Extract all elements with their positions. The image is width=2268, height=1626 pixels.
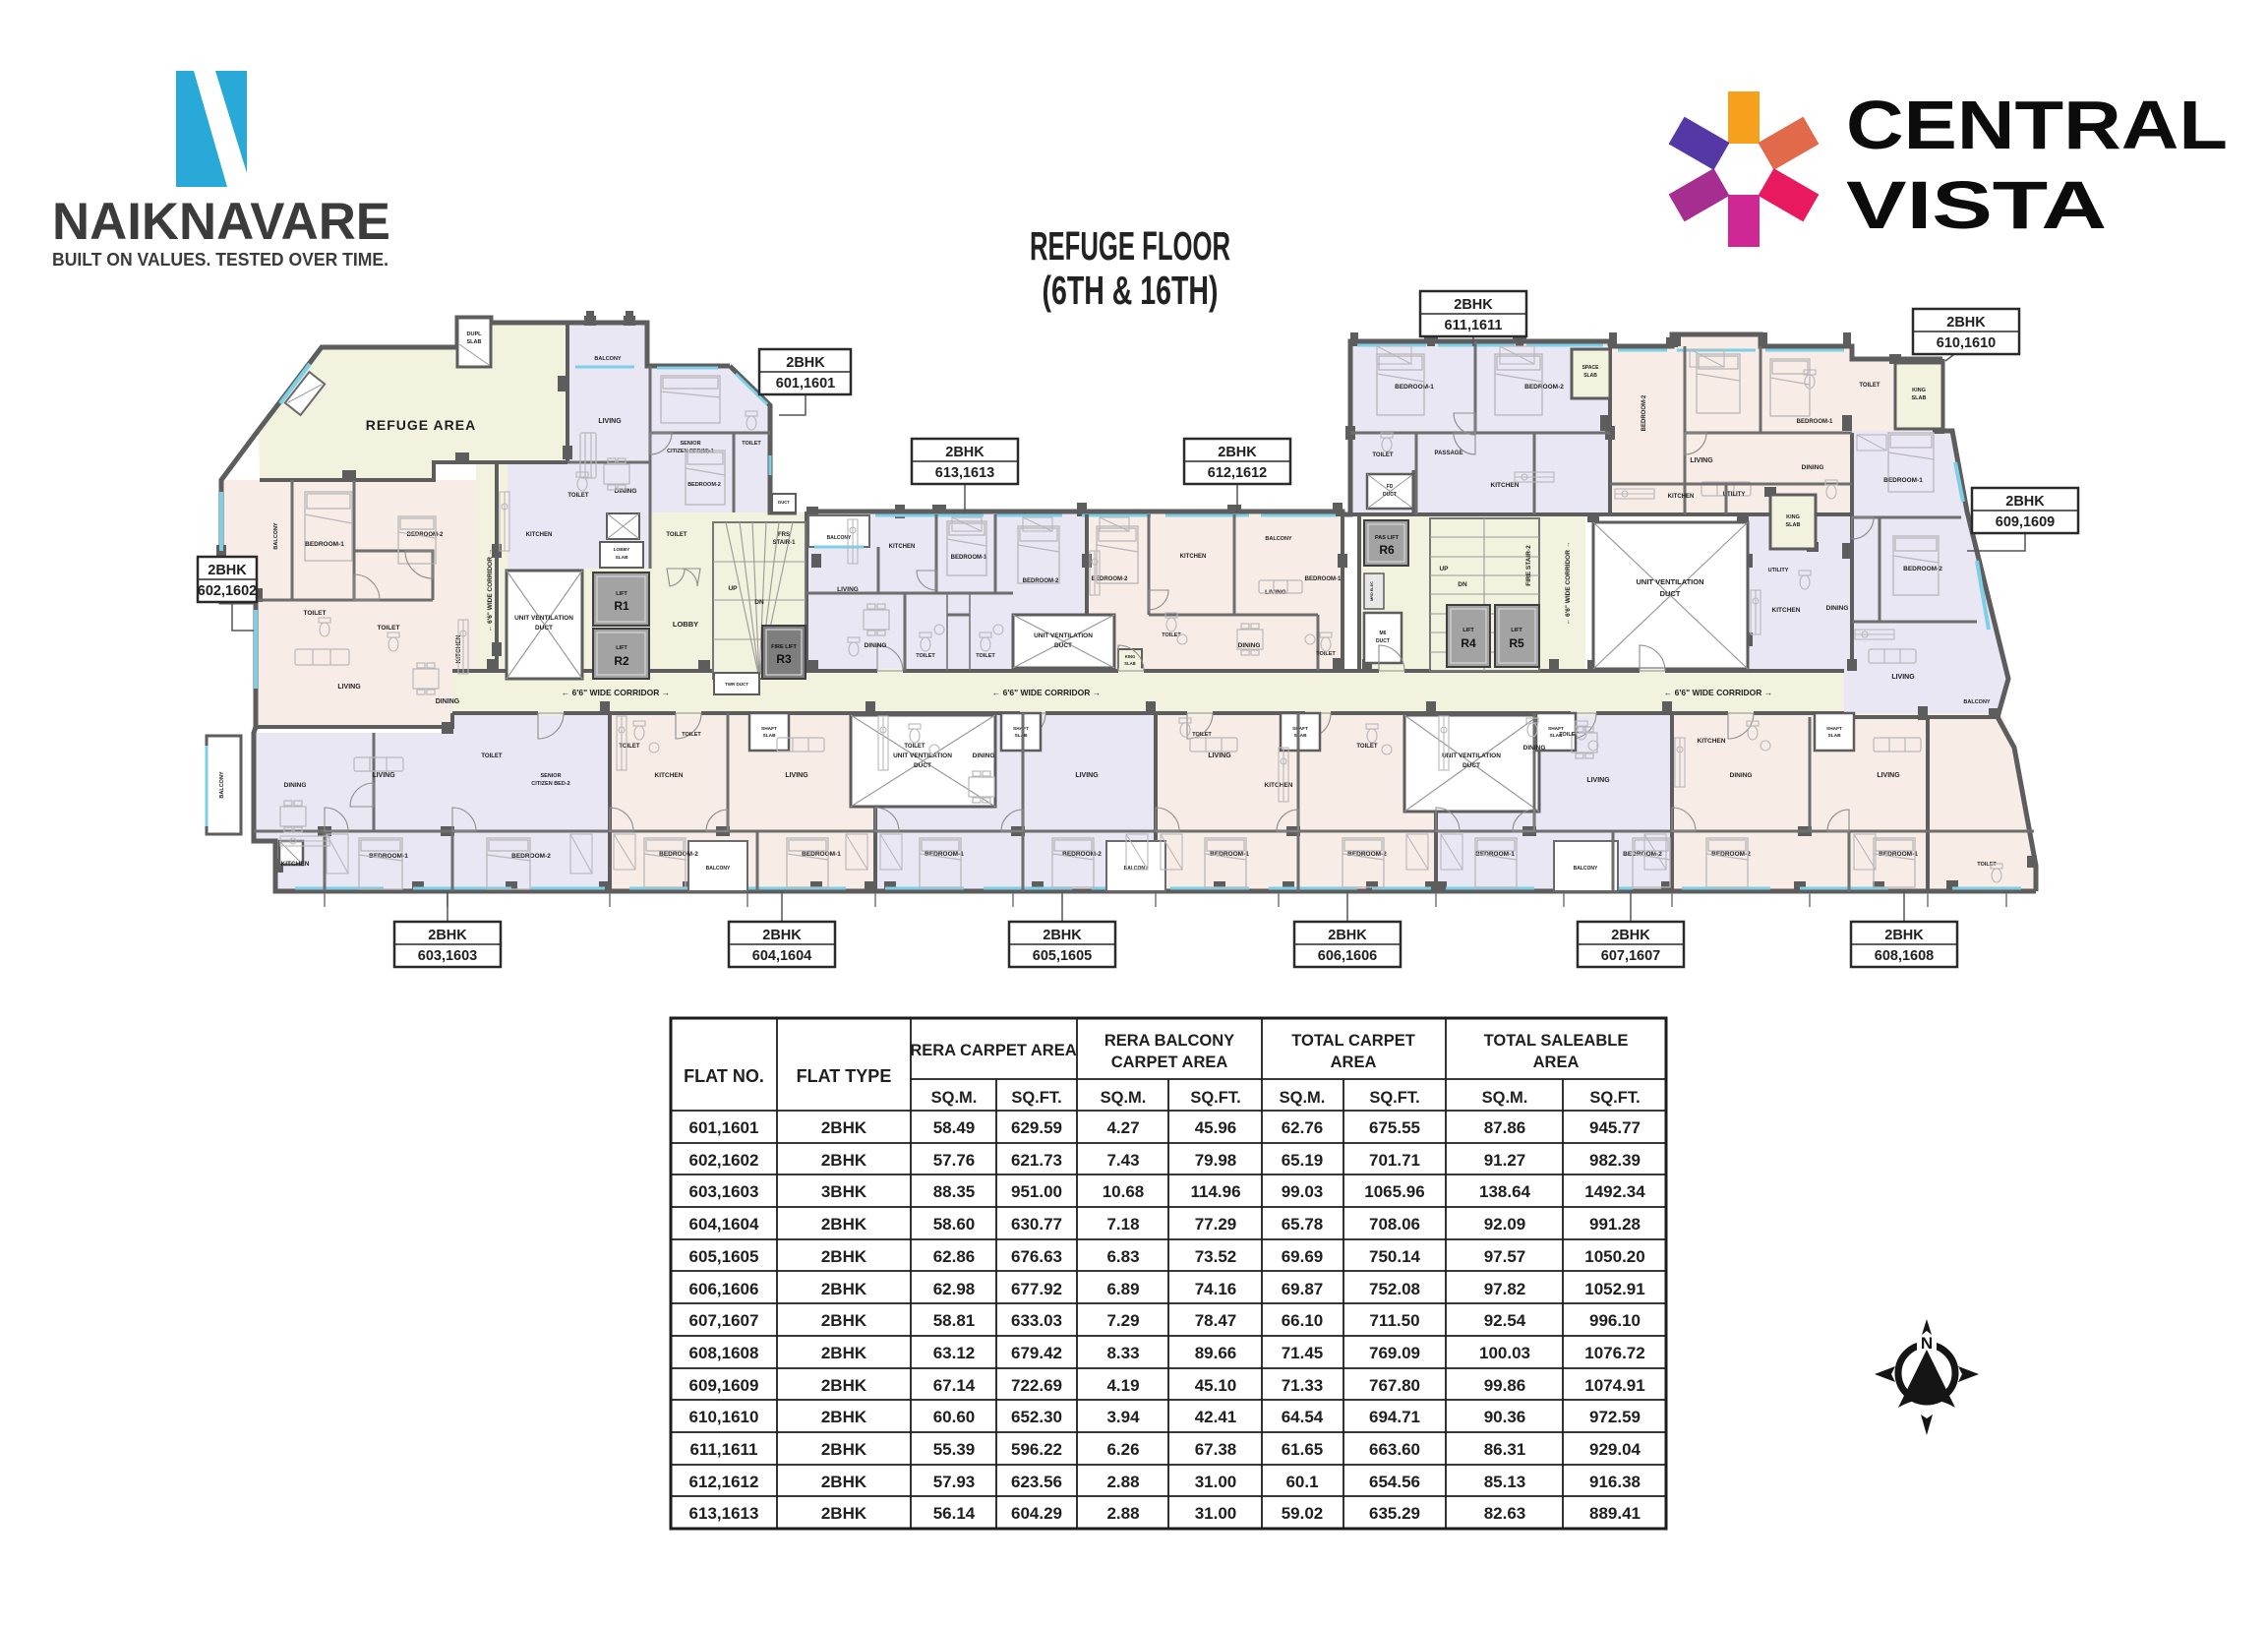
svg-text:601,1601: 601,1601 — [776, 376, 835, 391]
svg-text:CITIZEN BED-2: CITIZEN BED-2 — [531, 781, 569, 787]
svg-text:FLAT TYPE: FLAT TYPE — [797, 1066, 892, 1086]
svg-text:1050.20: 1050.20 — [1584, 1247, 1644, 1266]
svg-text:92.09: 92.09 — [1484, 1215, 1526, 1234]
svg-text:65.19: 65.19 — [1282, 1151, 1324, 1170]
svg-text:FIRE LIFT: FIRE LIFT — [771, 644, 797, 650]
svg-text:62.86: 62.86 — [933, 1247, 976, 1266]
svg-text:DINING: DINING — [1238, 642, 1261, 649]
svg-text:TOILET: TOILET — [567, 493, 589, 499]
svg-text:2BHK: 2BHK — [945, 445, 985, 460]
svg-text:2BHK: 2BHK — [821, 1247, 867, 1266]
svg-text:635.29: 635.29 — [1369, 1504, 1420, 1523]
svg-text:AREA: AREA — [1533, 1054, 1580, 1071]
svg-text:630.77: 630.77 — [1011, 1215, 1062, 1234]
svg-text:916.38: 916.38 — [1589, 1473, 1641, 1491]
svg-text:FD: FD — [1387, 484, 1394, 490]
svg-text:90.36: 90.36 — [1484, 1408, 1526, 1426]
svg-text:1076.72: 1076.72 — [1584, 1344, 1644, 1362]
svg-text:TOILET: TOILET — [976, 653, 995, 659]
svg-text:DUCT: DUCT — [1383, 492, 1397, 498]
svg-text:SHAFT: SHAFT — [1292, 726, 1308, 732]
svg-text:TOILET: TOILET — [378, 625, 400, 632]
svg-text:SQ.M.: SQ.M. — [1482, 1089, 1528, 1107]
svg-text:DUCT: DUCT — [1376, 638, 1390, 644]
svg-text:R6: R6 — [1379, 543, 1395, 557]
svg-text:BUILT ON VALUES. TESTED OVER T: BUILT ON VALUES. TESTED OVER TIME. — [52, 250, 388, 270]
svg-text:← 6'6" WIDE CORRIDOR →: ← 6'6" WIDE CORRIDOR → — [562, 688, 670, 697]
svg-text:TOILET: TOILET — [666, 532, 687, 538]
svg-text:2.88: 2.88 — [1106, 1473, 1139, 1491]
svg-text:889.41: 889.41 — [1589, 1504, 1641, 1523]
svg-text:FRS: FRS — [778, 532, 790, 538]
svg-text:608,1608: 608,1608 — [689, 1344, 759, 1362]
svg-text:623.56: 623.56 — [1011, 1473, 1062, 1491]
svg-text:PASSAGE: PASSAGE — [1435, 451, 1463, 456]
svg-text:TOILET: TOILET — [1192, 732, 1212, 738]
svg-text:LOBBY: LOBBY — [614, 547, 631, 553]
svg-text:SQ.FT.: SQ.FT. — [1190, 1089, 1240, 1107]
svg-text:BALCONY: BALCONY — [1574, 866, 1598, 872]
svg-text:2BHK: 2BHK — [786, 355, 825, 371]
svg-text:CITIZEN BED(M)-1: CITIZEN BED(M)-1 — [667, 449, 714, 454]
svg-text:KING: KING — [1912, 388, 1926, 393]
svg-text:2BHK: 2BHK — [821, 1504, 867, 1523]
svg-text:613,1613: 613,1613 — [935, 465, 994, 481]
svg-text:607,1607: 607,1607 — [1601, 948, 1660, 964]
svg-text:SHAFT: SHAFT — [1013, 726, 1029, 732]
svg-text:TOILET: TOILET — [904, 744, 925, 750]
svg-text:PAS LIFT: PAS LIFT — [1375, 535, 1400, 541]
svg-text:TOTAL CARPET: TOTAL CARPET — [1291, 1032, 1415, 1050]
svg-text:69.87: 69.87 — [1282, 1280, 1324, 1298]
svg-text:DINING: DINING — [865, 642, 887, 649]
svg-text:UNIT VENTILATION: UNIT VENTILATION — [514, 615, 573, 622]
svg-text:31.00: 31.00 — [1195, 1473, 1237, 1491]
svg-text:SENIOR: SENIOR — [680, 441, 700, 447]
svg-text:609,1609: 609,1609 — [689, 1376, 759, 1395]
svg-text:679.42: 679.42 — [1011, 1344, 1062, 1362]
svg-text:BALCONY: BALCONY — [594, 356, 622, 362]
svg-text:604,1604: 604,1604 — [752, 948, 811, 964]
svg-text:FIRE STAIR-2: FIRE STAIR-2 — [1525, 545, 1532, 586]
svg-text:73.52: 73.52 — [1195, 1247, 1237, 1266]
svg-text:UP: UP — [728, 585, 738, 592]
svg-text:TOILET: TOILET — [1559, 732, 1579, 738]
svg-text:8.33: 8.33 — [1106, 1344, 1139, 1362]
svg-text:603,1603: 603,1603 — [689, 1182, 759, 1201]
svg-text:602,1602: 602,1602 — [198, 583, 257, 599]
svg-text:SENIOR: SENIOR — [540, 773, 561, 779]
svg-text:603,1603: 603,1603 — [418, 948, 477, 964]
svg-text:7.18: 7.18 — [1106, 1215, 1139, 1234]
svg-text:929.04: 929.04 — [1589, 1440, 1641, 1459]
svg-text:65.78: 65.78 — [1282, 1215, 1324, 1234]
svg-text:611,1611: 611,1611 — [1445, 318, 1503, 333]
svg-text:KING: KING — [1786, 514, 1800, 520]
svg-text:6.83: 6.83 — [1106, 1247, 1139, 1266]
svg-text:2BHK: 2BHK — [821, 1473, 867, 1491]
svg-text:LIFT: LIFT — [1511, 628, 1522, 633]
svg-text:UNIT VENTILATION: UNIT VENTILATION — [1636, 577, 1703, 586]
svg-text:71.45: 71.45 — [1282, 1344, 1324, 1362]
svg-text:BALCONY: BALCONY — [1963, 699, 1991, 705]
svg-text:TOILET: TOILET — [619, 744, 640, 750]
svg-text:1492.34: 1492.34 — [1584, 1182, 1645, 1201]
svg-text:1065.96: 1065.96 — [1364, 1182, 1424, 1201]
svg-text:LIFT: LIFT — [616, 645, 627, 651]
svg-text:675.55: 675.55 — [1369, 1118, 1420, 1137]
svg-text:4.19: 4.19 — [1106, 1376, 1139, 1395]
svg-text:2BHK: 2BHK — [821, 1311, 867, 1330]
svg-text:610,1610: 610,1610 — [1937, 335, 1996, 351]
svg-text:KING: KING — [1125, 654, 1135, 659]
svg-text:DINING: DINING — [1826, 605, 1849, 612]
svg-text:BEDROOM-1: BEDROOM-1 — [1797, 419, 1833, 425]
svg-text:62.98: 62.98 — [933, 1280, 976, 1298]
svg-text:663.60: 663.60 — [1369, 1440, 1420, 1459]
svg-text:604,1604: 604,1604 — [689, 1215, 759, 1234]
svg-text:LIVING: LIVING — [1208, 753, 1231, 759]
svg-text:DINING: DINING — [284, 782, 307, 789]
svg-text:78.47: 78.47 — [1195, 1311, 1237, 1330]
svg-text:VISTA: VISTA — [1846, 167, 2107, 243]
svg-text:SPACE: SPACE — [1582, 365, 1600, 371]
svg-text:596.22: 596.22 — [1011, 1440, 1062, 1459]
svg-text:722.69: 722.69 — [1011, 1376, 1062, 1395]
svg-text:TOILET: TOILET — [1372, 452, 1394, 458]
svg-text:767.80: 767.80 — [1369, 1376, 1420, 1395]
svg-text:DUCT: DUCT — [778, 500, 790, 505]
svg-text:KITCHEN: KITCHEN — [889, 544, 916, 550]
svg-text:TOILET: TOILET — [1977, 862, 1997, 868]
svg-text:LIVING: LIVING — [1075, 772, 1099, 779]
svg-text:DINING: DINING — [1730, 772, 1753, 779]
svg-text:STAIR-1: STAIR-1 — [773, 540, 797, 546]
svg-text:SQ.M.: SQ.M. — [931, 1089, 978, 1107]
svg-text:DUCT: DUCT — [1054, 642, 1072, 649]
svg-text:99.86: 99.86 — [1484, 1376, 1526, 1395]
svg-text:654.56: 654.56 — [1369, 1473, 1420, 1491]
svg-text:SLAB: SLAB — [1827, 733, 1841, 739]
svg-text:42.41: 42.41 — [1195, 1408, 1237, 1426]
svg-text:LIVING: LIVING — [1586, 777, 1610, 784]
svg-text:TOILET: TOILET — [682, 732, 701, 738]
svg-text:BALCONY: BALCONY — [219, 771, 225, 799]
svg-text:TOILET: TOILET — [916, 653, 935, 659]
svg-text:UNIT VENTILATION: UNIT VENTILATION — [1442, 753, 1501, 759]
svg-text:DINING: DINING — [1523, 745, 1546, 752]
svg-text:← 6'6" WIDE CORRIDOR →: ← 6'6" WIDE CORRIDOR → — [1664, 688, 1772, 697]
svg-text:694.71: 694.71 — [1369, 1408, 1420, 1426]
svg-text:BEDROOM-1: BEDROOM-1 — [951, 555, 987, 561]
svg-text:57.93: 57.93 — [933, 1473, 976, 1491]
svg-text:87.86: 87.86 — [1484, 1118, 1526, 1137]
svg-text:752.08: 752.08 — [1369, 1280, 1420, 1298]
svg-text:750.14: 750.14 — [1369, 1247, 1421, 1266]
svg-text:4.27: 4.27 — [1106, 1118, 1139, 1137]
svg-text:TOILET: TOILET — [304, 610, 327, 617]
svg-text:DUCT: DUCT — [535, 625, 553, 632]
svg-text:CENTRAL: CENTRAL — [1846, 87, 2228, 163]
svg-text:SQ.M.: SQ.M. — [1101, 1089, 1147, 1107]
svg-text:DUPL: DUPL — [467, 331, 483, 337]
svg-text:← 6'6" WIDE CORRIDOR →: ← 6'6" WIDE CORRIDOR → — [487, 549, 494, 632]
svg-text:652.30: 652.30 — [1011, 1408, 1062, 1426]
svg-text:SLAB: SLAB — [1912, 395, 1927, 401]
svg-text:10.68: 10.68 — [1103, 1182, 1145, 1201]
svg-text:58.49: 58.49 — [933, 1118, 976, 1137]
svg-text:BEDROOM-2: BEDROOM-2 — [1903, 566, 1942, 572]
svg-text:2.88: 2.88 — [1106, 1504, 1139, 1523]
svg-text:(6TH & 16TH): (6TH & 16TH) — [1043, 268, 1219, 313]
svg-text:97.82: 97.82 — [1484, 1280, 1526, 1298]
svg-text:79.98: 79.98 — [1195, 1151, 1237, 1170]
svg-text:610,1610: 610,1610 — [689, 1408, 759, 1426]
svg-text:621.73: 621.73 — [1011, 1151, 1062, 1170]
svg-text:LIVING: LIVING — [1891, 674, 1915, 681]
svg-text:LIVING: LIVING — [337, 684, 361, 691]
svg-text:100.03: 100.03 — [1479, 1344, 1530, 1362]
svg-text:DINING: DINING — [1802, 464, 1824, 471]
svg-text:2BHK: 2BHK — [1611, 928, 1650, 943]
svg-text:SLAB: SLAB — [1124, 661, 1135, 666]
svg-text:TOILET: TOILET — [481, 753, 503, 759]
svg-text:DINING: DINING — [973, 753, 995, 759]
svg-text:LIVING: LIVING — [1690, 457, 1713, 464]
svg-text:2BHK: 2BHK — [821, 1215, 867, 1234]
svg-text:60.1: 60.1 — [1285, 1473, 1318, 1491]
svg-text:UNIT VENTILATION: UNIT VENTILATION — [893, 753, 952, 759]
svg-text:605,1605: 605,1605 — [1033, 948, 1092, 964]
svg-text:138.64: 138.64 — [1479, 1182, 1531, 1201]
svg-text:FLAT NO.: FLAT NO. — [684, 1066, 764, 1086]
svg-text:60.60: 60.60 — [933, 1408, 976, 1426]
svg-text:708.06: 708.06 — [1369, 1215, 1420, 1234]
svg-text:711.50: 711.50 — [1369, 1311, 1419, 1330]
svg-text:DN: DN — [1458, 581, 1467, 588]
svg-text:991.28: 991.28 — [1589, 1215, 1641, 1234]
svg-text:6.89: 6.89 — [1106, 1280, 1139, 1298]
svg-text:677.92: 677.92 — [1011, 1280, 1062, 1298]
svg-text:SLAB: SLAB — [1293, 733, 1307, 739]
svg-text:SQ.M.: SQ.M. — [1280, 1089, 1326, 1107]
svg-text:612,1612: 612,1612 — [689, 1473, 759, 1491]
svg-text:602,1602: 602,1602 — [689, 1151, 759, 1170]
svg-text:UP: UP — [1439, 566, 1449, 572]
svg-text:DN: DN — [754, 599, 764, 606]
svg-text:2BHK: 2BHK — [1454, 297, 1493, 313]
svg-text:SHAFT: SHAFT — [1826, 726, 1842, 732]
svg-text:N: N — [1921, 1334, 1933, 1353]
svg-text:BALCONY: BALCONY — [1124, 866, 1149, 872]
svg-text:2BHK: 2BHK — [2005, 494, 2045, 510]
svg-text:SQ.FT.: SQ.FT. — [1589, 1089, 1640, 1107]
svg-text:82.63: 82.63 — [1484, 1504, 1526, 1523]
svg-text:LIVING: LIVING — [1877, 772, 1900, 779]
svg-text:CARPET AREA: CARPET AREA — [1111, 1054, 1228, 1071]
svg-text:KITCHEN: KITCHEN — [1698, 738, 1726, 745]
svg-text:31.00: 31.00 — [1195, 1504, 1237, 1523]
svg-text:SLAB: SLAB — [467, 339, 482, 345]
svg-text:LIVING: LIVING — [372, 772, 395, 779]
svg-text:R3: R3 — [776, 652, 792, 666]
svg-text:BEDROOM-1: BEDROOM-1 — [1395, 384, 1434, 391]
svg-text:R1: R1 — [614, 599, 629, 613]
svg-text:58.60: 58.60 — [933, 1215, 976, 1234]
svg-text:SLAB: SLAB — [615, 555, 628, 561]
svg-text:2BHK: 2BHK — [208, 563, 247, 578]
svg-text:612,1612: 612,1612 — [1208, 465, 1267, 481]
svg-text:REFUGE FLOOR: REFUGE FLOOR — [1030, 223, 1230, 269]
svg-text:2BHK: 2BHK — [821, 1344, 867, 1362]
svg-text:1074.91: 1074.91 — [1584, 1376, 1644, 1395]
svg-text:SLAB: SLAB — [762, 733, 776, 739]
svg-text:LIFT: LIFT — [616, 591, 627, 597]
svg-text:SLAB: SLAB — [1014, 733, 1028, 739]
svg-text:2BHK: 2BHK — [821, 1118, 867, 1137]
svg-text:85.13: 85.13 — [1484, 1473, 1526, 1491]
svg-text:63.12: 63.12 — [933, 1344, 976, 1362]
svg-text:676.63: 676.63 — [1011, 1247, 1062, 1266]
svg-text:BEDROOM-1: BEDROOM-1 — [1883, 477, 1923, 484]
svg-text:613,1613: 613,1613 — [689, 1504, 759, 1523]
svg-text:2BHK: 2BHK — [1946, 315, 1986, 331]
svg-text:BEDROOM-2: BEDROOM-2 — [687, 482, 721, 488]
svg-text:701.71: 701.71 — [1369, 1151, 1420, 1170]
svg-text:3.94: 3.94 — [1106, 1408, 1140, 1426]
svg-text:LIVING: LIVING — [837, 586, 859, 593]
svg-text:DUCT: DUCT — [914, 762, 931, 769]
svg-text:606,1606: 606,1606 — [1318, 948, 1377, 964]
svg-text:605,1605: 605,1605 — [689, 1247, 759, 1266]
svg-text:DINING: DINING — [436, 698, 460, 705]
svg-text:55.39: 55.39 — [933, 1440, 976, 1459]
svg-text:M6: M6 — [1380, 631, 1387, 636]
svg-text:BEDROOM-2: BEDROOM-2 — [407, 532, 444, 538]
svg-text:611,1611: 611,1611 — [689, 1440, 757, 1459]
svg-text:97.57: 97.57 — [1484, 1247, 1526, 1266]
svg-text:86.31: 86.31 — [1484, 1440, 1526, 1459]
svg-text:6.26: 6.26 — [1106, 1440, 1139, 1459]
svg-text:BALCONY: BALCONY — [1265, 536, 1292, 542]
svg-text:996.10: 996.10 — [1589, 1311, 1641, 1330]
svg-text:SQ.FT.: SQ.FT. — [1369, 1089, 1419, 1107]
svg-text:TOILET: TOILET — [742, 441, 761, 447]
svg-text:DUCT: DUCT — [1660, 589, 1681, 598]
svg-text:1052.91: 1052.91 — [1584, 1280, 1644, 1298]
svg-text:SLAB: SLAB — [1583, 373, 1597, 379]
svg-text:71.33: 71.33 — [1282, 1376, 1324, 1395]
svg-text:2BHK: 2BHK — [821, 1151, 867, 1170]
svg-text:66.10: 66.10 — [1282, 1311, 1324, 1330]
svg-text:604.29: 604.29 — [1011, 1504, 1062, 1523]
svg-text:2BHK: 2BHK — [1043, 928, 1082, 943]
svg-text:TOILET: TOILET — [1859, 383, 1880, 389]
svg-text:KITCHEN: KITCHEN — [526, 532, 553, 538]
svg-text:7.43: 7.43 — [1106, 1151, 1139, 1170]
svg-text:89.66: 89.66 — [1195, 1344, 1237, 1362]
svg-text:607,1607: 607,1607 — [689, 1311, 759, 1330]
svg-text:← 6'6" WIDE CORRIDOR →: ← 6'6" WIDE CORRIDOR → — [992, 688, 1101, 697]
svg-text:606,1606: 606,1606 — [689, 1280, 759, 1298]
svg-text:69.69: 69.69 — [1282, 1247, 1324, 1266]
svg-text:← 6'6" WIDE CORRIDOR →: ← 6'6" WIDE CORRIDOR → — [1565, 542, 1572, 625]
svg-text:SHAFT: SHAFT — [761, 726, 777, 732]
svg-text:AREA: AREA — [1331, 1054, 1377, 1071]
svg-text:REFUGE AREA: REFUGE AREA — [366, 417, 476, 433]
svg-text:982.39: 982.39 — [1589, 1151, 1641, 1170]
svg-text:601,1601: 601,1601 — [689, 1118, 759, 1137]
svg-text:99.03: 99.03 — [1282, 1182, 1324, 1201]
svg-text:2BHK: 2BHK — [821, 1440, 867, 1459]
svg-text:92.54: 92.54 — [1484, 1311, 1526, 1330]
svg-text:629.59: 629.59 — [1011, 1118, 1062, 1137]
svg-text:MRD ELEC: MRD ELEC — [1370, 581, 1374, 601]
svg-text:62.76: 62.76 — [1282, 1118, 1324, 1137]
svg-text:LIVING: LIVING — [598, 418, 622, 425]
svg-text:R2: R2 — [614, 654, 629, 668]
svg-text:BEDROOM-1: BEDROOM-1 — [1305, 576, 1342, 582]
svg-text:SQ.FT.: SQ.FT. — [1011, 1089, 1061, 1107]
svg-text:KITCHEN: KITCHEN — [1668, 494, 1695, 500]
svg-text:3BHK: 3BHK — [821, 1182, 867, 1201]
svg-text:2BHK: 2BHK — [1328, 928, 1367, 943]
svg-text:57.76: 57.76 — [933, 1151, 976, 1170]
svg-text:TOILET: TOILET — [1316, 651, 1336, 657]
svg-text:R4: R4 — [1461, 636, 1476, 650]
svg-text:88.35: 88.35 — [933, 1182, 976, 1201]
svg-text:BALCONY: BALCONY — [273, 522, 279, 550]
svg-text:633.03: 633.03 — [1011, 1311, 1062, 1330]
svg-text:TWR DUCT: TWR DUCT — [725, 682, 748, 687]
svg-text:609,1609: 609,1609 — [1996, 514, 2055, 530]
svg-text:2BHK: 2BHK — [762, 928, 802, 943]
svg-text:61.65: 61.65 — [1282, 1440, 1324, 1459]
svg-text:KITCHEN: KITCHEN — [655, 772, 684, 779]
svg-text:2BHK: 2BHK — [821, 1408, 867, 1426]
svg-text:2BHK: 2BHK — [821, 1376, 867, 1395]
svg-text:TOILET: TOILET — [1356, 744, 1378, 750]
svg-text:KITCHEN: KITCHEN — [1772, 607, 1801, 614]
svg-text:769.09: 769.09 — [1369, 1344, 1420, 1362]
svg-text:RERA CARPET AREA: RERA CARPET AREA — [910, 1042, 1076, 1059]
svg-text:951.00: 951.00 — [1011, 1182, 1062, 1201]
svg-text:56.14: 56.14 — [933, 1504, 976, 1523]
svg-text:UNIT VENTILATION: UNIT VENTILATION — [1034, 632, 1093, 639]
svg-text:BEDROOM-2: BEDROOM-2 — [1524, 384, 1564, 391]
svg-text:BEDROOM-1: BEDROOM-1 — [305, 541, 344, 548]
svg-text:972.59: 972.59 — [1589, 1408, 1641, 1426]
svg-text:BEDROOM-2: BEDROOM-2 — [1641, 394, 1647, 431]
svg-text:UTILITY: UTILITY — [1768, 568, 1789, 573]
svg-text:74.16: 74.16 — [1195, 1280, 1237, 1298]
svg-text:TOTAL SALEABLE: TOTAL SALEABLE — [1484, 1032, 1629, 1050]
svg-text:58.81: 58.81 — [933, 1311, 976, 1330]
svg-text:BALCONY: BALCONY — [706, 866, 731, 872]
svg-text:77.29: 77.29 — [1195, 1215, 1237, 1234]
svg-text:NAIKNAVARE: NAIKNAVARE — [52, 193, 390, 251]
svg-text:7.29: 7.29 — [1106, 1311, 1139, 1330]
svg-text:45.96: 45.96 — [1195, 1118, 1237, 1137]
svg-text:64.54: 64.54 — [1282, 1408, 1324, 1426]
svg-text:LOBBY: LOBBY — [673, 620, 698, 629]
svg-text:45.10: 45.10 — [1195, 1376, 1237, 1395]
svg-text:2BHK: 2BHK — [1884, 928, 1924, 943]
svg-text:59.02: 59.02 — [1282, 1504, 1324, 1523]
svg-text:945.77: 945.77 — [1589, 1118, 1641, 1137]
svg-text:KITCHEN: KITCHEN — [1491, 482, 1520, 489]
svg-text:2BHK: 2BHK — [821, 1280, 867, 1298]
